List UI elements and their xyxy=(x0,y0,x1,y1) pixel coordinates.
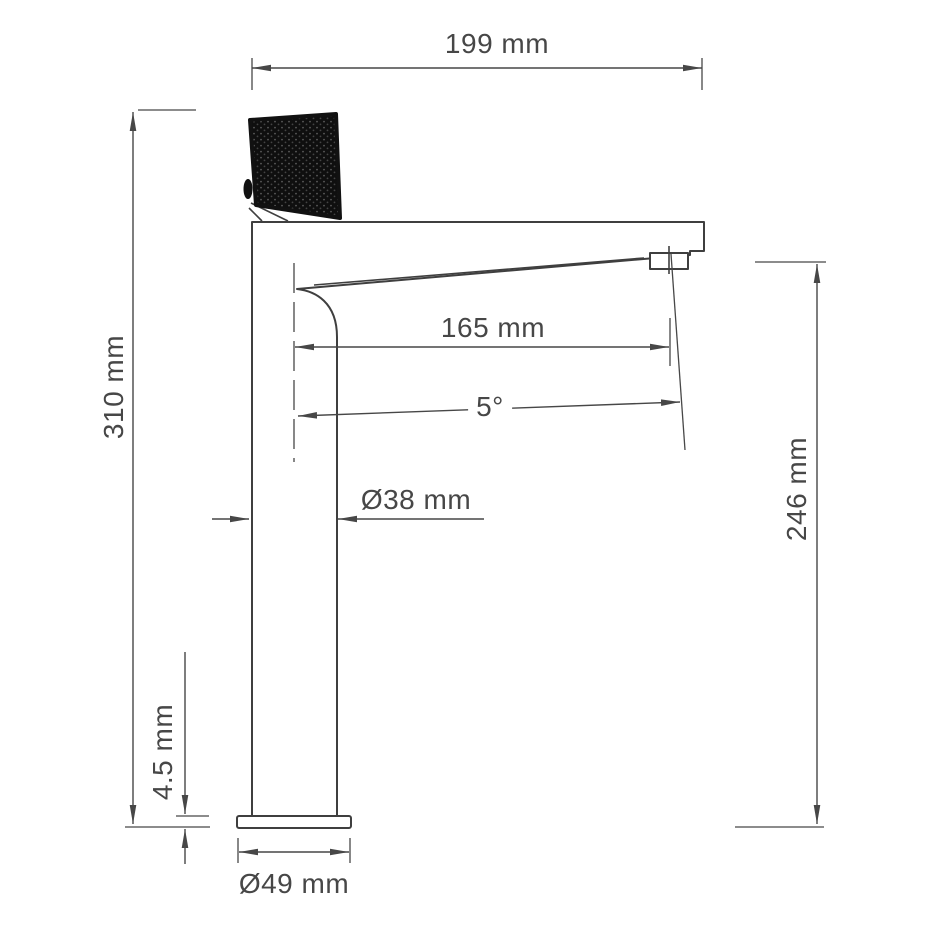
dim-label-total-height: 310 mm xyxy=(100,335,128,439)
extension-lines xyxy=(125,58,826,863)
technical-drawing-page: 199 mm 310 mm 165 mm 5° Ø38 mm 246 mm 4.… xyxy=(0,0,950,950)
dim-label-spout-reach: 165 mm xyxy=(441,314,545,342)
dim-label-base-diameter: Ø49 mm xyxy=(239,870,349,898)
handle-nub xyxy=(244,179,253,199)
ext-aerator-slant xyxy=(671,254,685,450)
dim-label-spout-angle: 5° xyxy=(468,393,512,421)
base-plate xyxy=(237,816,351,828)
handle xyxy=(250,114,340,218)
dimension-lines xyxy=(133,68,817,864)
dim-label-base-thickness: 4.5 mm xyxy=(149,704,177,800)
dim-label-total-width: 199 mm xyxy=(445,30,549,58)
faucet-body-outline xyxy=(237,114,704,828)
dim-label-spout-height: 246 mm xyxy=(783,437,811,541)
dim-label-body-diameter: Ø38 mm xyxy=(361,486,471,514)
